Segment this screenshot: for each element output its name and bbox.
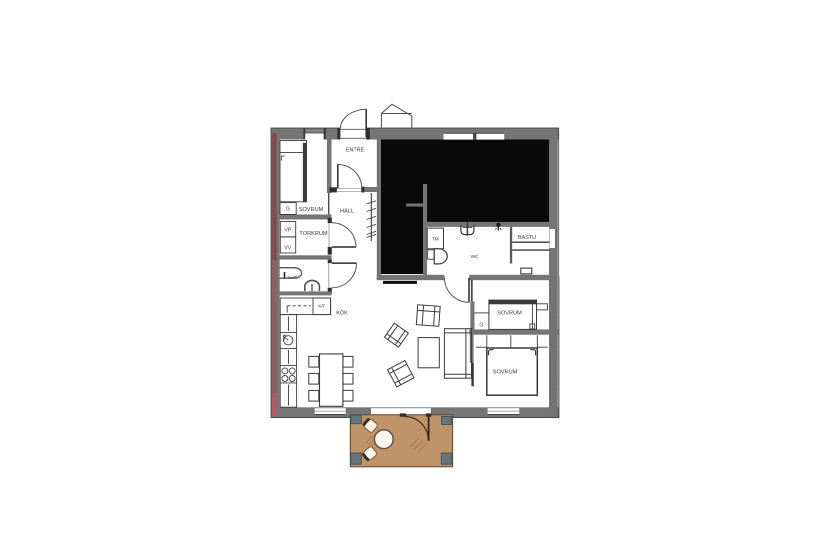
svg-text:TORKRUM: TORKRUM	[299, 231, 328, 237]
svg-text:HALL: HALL	[340, 209, 354, 215]
svg-text:WC: WC	[471, 254, 480, 260]
svg-text:SOVRUM: SOVRUM	[299, 207, 324, 213]
svg-text:G: G	[286, 207, 290, 213]
svg-text:VV: VV	[284, 245, 291, 251]
svg-text:KÖK: KÖK	[336, 309, 348, 316]
svg-text:ENTRÉ: ENTRÉ	[346, 147, 365, 154]
svg-text:TM: TM	[432, 236, 439, 241]
svg-text:SOVRUM: SOVRUM	[493, 370, 518, 376]
svg-text:VP: VP	[284, 227, 291, 233]
svg-text:K/F: K/F	[318, 304, 325, 309]
svg-text:SOVRUM: SOVRUM	[497, 311, 522, 317]
svg-text:BASTU: BASTU	[518, 235, 536, 241]
svg-text:G: G	[479, 323, 483, 329]
